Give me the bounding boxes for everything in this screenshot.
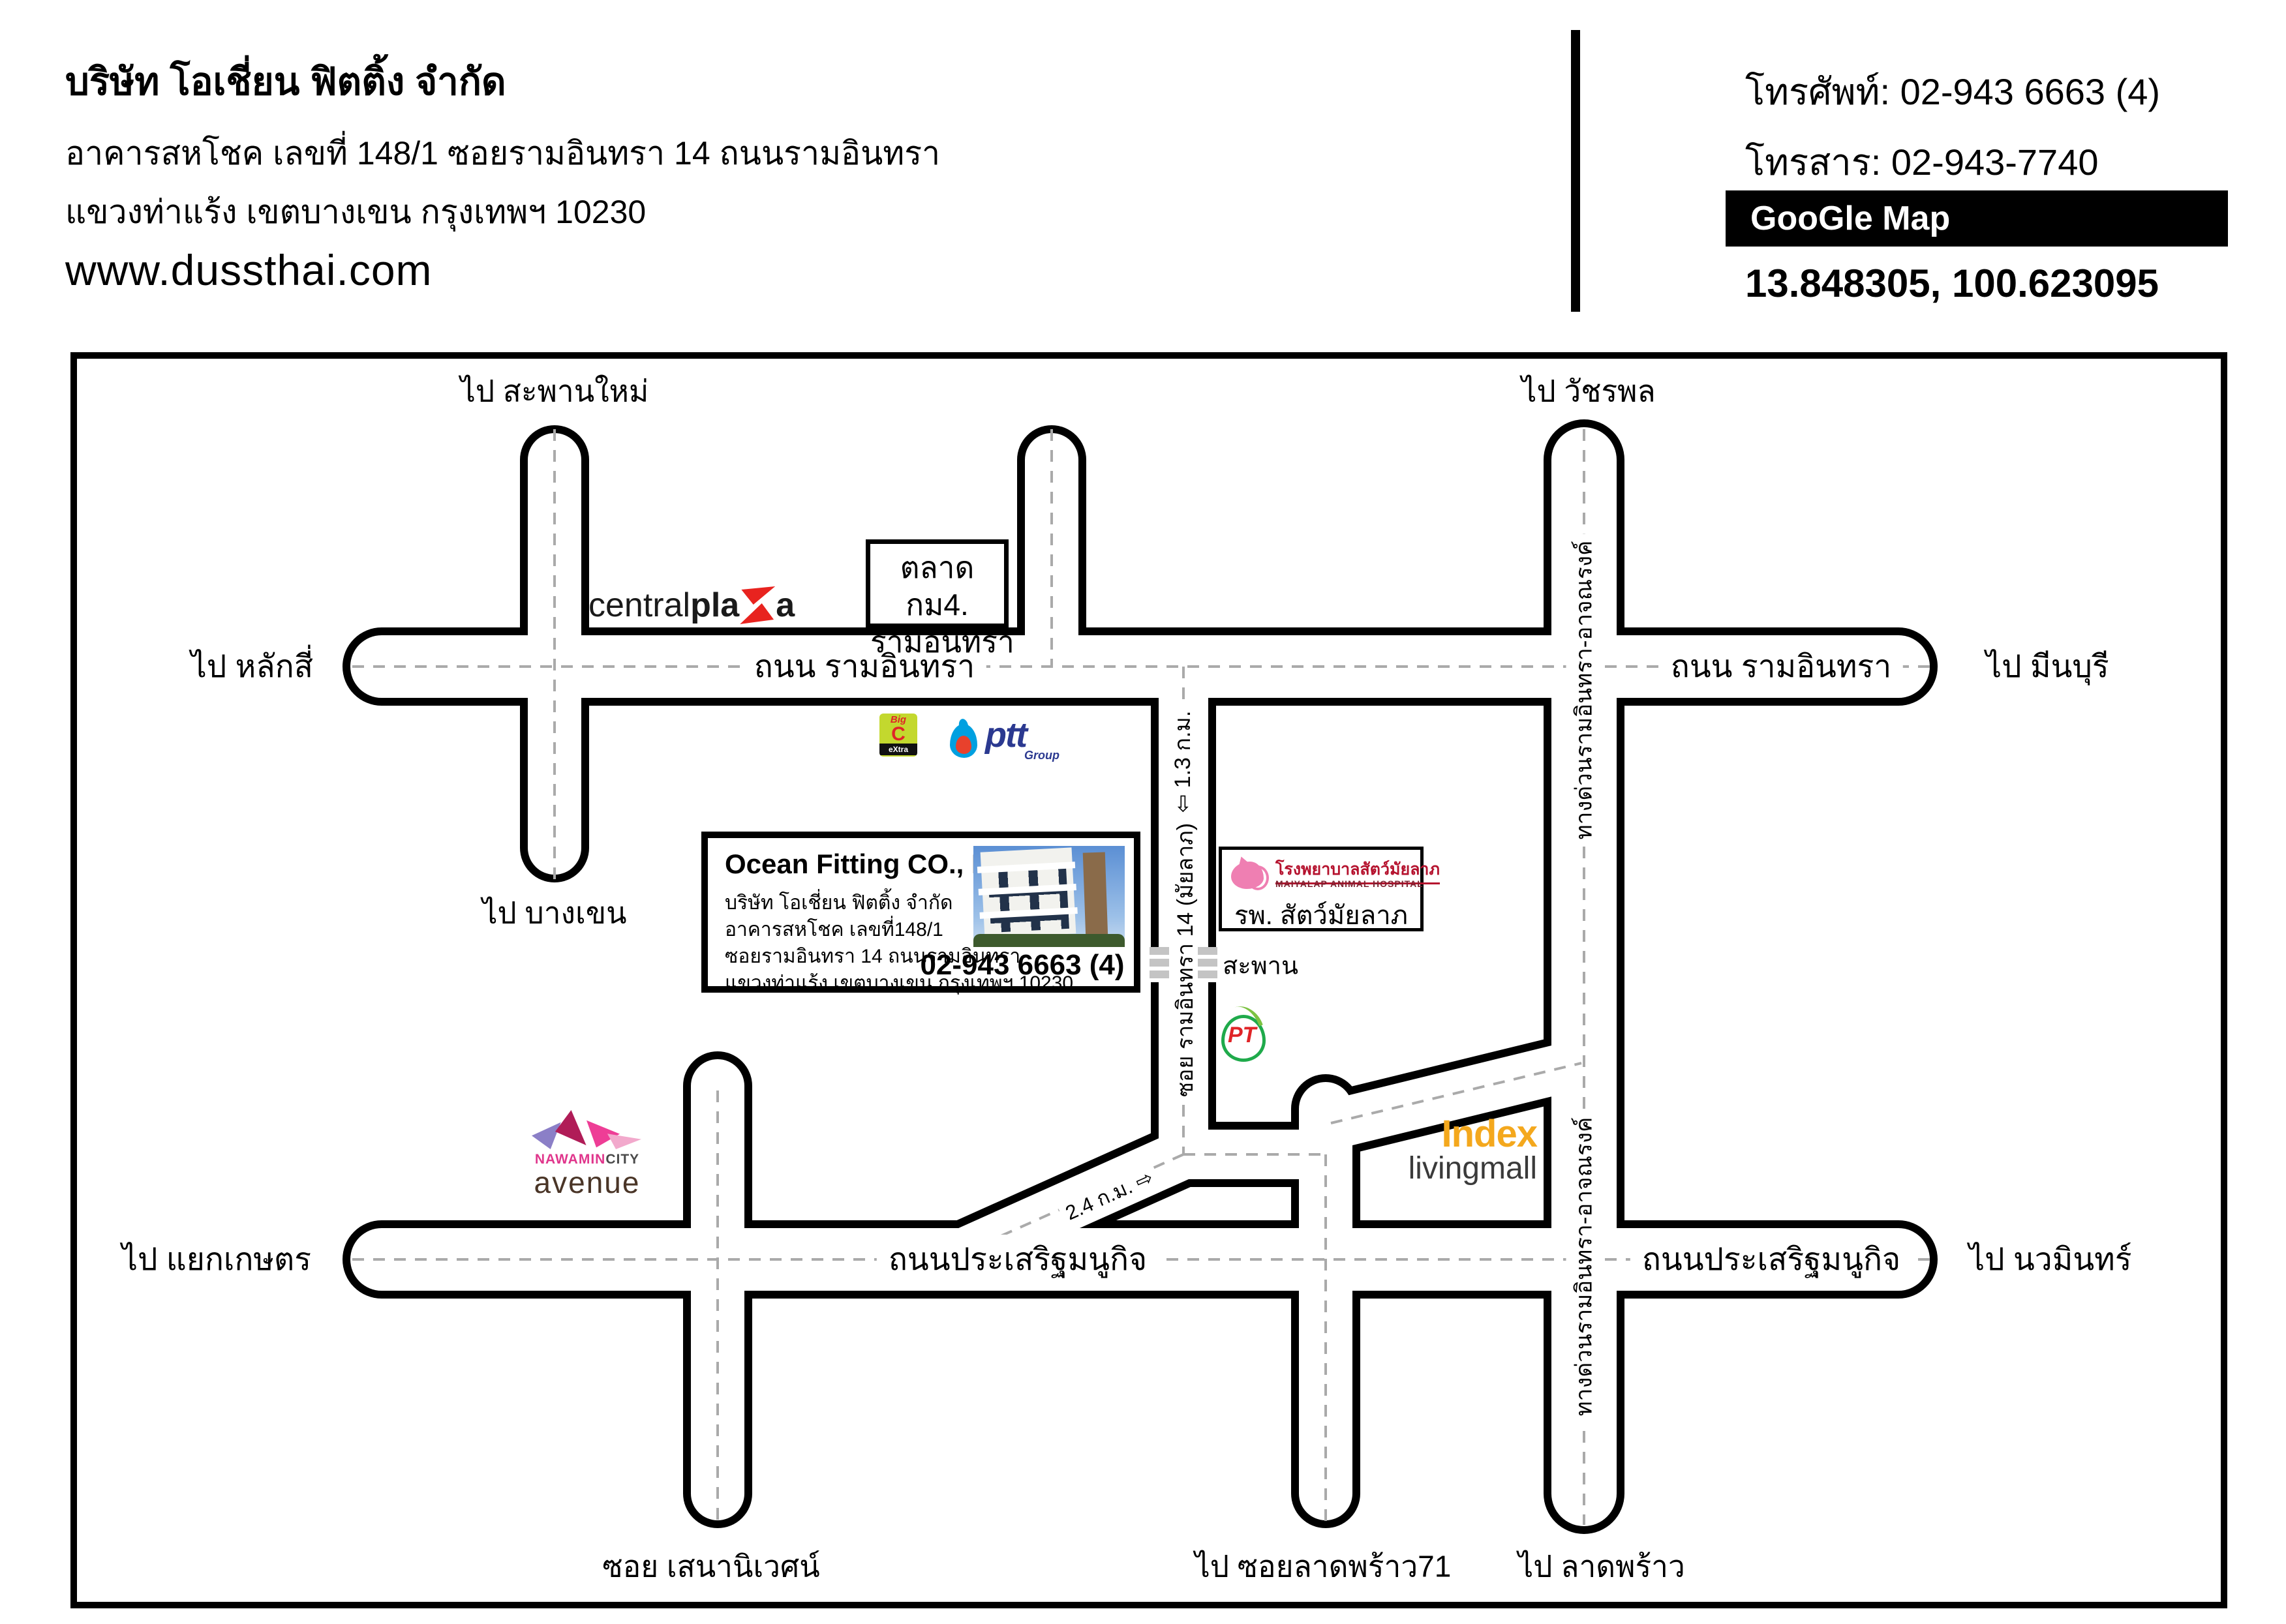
dest-soi-ladprao71: ไป ซอยลาดพร้าว71: [1195, 1543, 1452, 1591]
market-km4-line1: ตลาด กม4.: [870, 549, 1004, 624]
dest-lak-si: ไป หลักสี่: [179, 642, 325, 691]
central-plaza-z-icon: [740, 586, 775, 624]
road-network: [0, 0, 2286, 1624]
big-c-c-text: C: [879, 725, 917, 744]
distance-1-3-text: 1.3 ก.ม.: [1170, 711, 1195, 789]
index-sub: livingmall: [1409, 1153, 1537, 1184]
market-km4-box: ตลาด กม4. รามอินทรา: [866, 539, 1009, 628]
ocean-fitting-line2: อาคารสหโชค เลขที่148/1: [725, 914, 943, 945]
market-km4-line2: รามอินทรา: [870, 624, 1004, 661]
bridge-hatch-icon: [1198, 947, 1217, 982]
nawamin-name: NAWAMIN: [535, 1152, 606, 1167]
central-plaza-logo: centralplaa: [588, 586, 795, 625]
index-livingmall-logo: Index livingmall: [1409, 1115, 1537, 1184]
index-name: Index: [1409, 1115, 1537, 1153]
maiyalap-english-name: MAIYALAP ANIMAL HOSPITAL: [1275, 879, 1424, 889]
distance-1-3-km: ⇦ 1.3 ก.ม.: [1165, 704, 1200, 820]
maiyalap-hospital-box: โรงพยาบาลสัตว์มัยลาภ MAIYALAP ANIMAL HOS…: [1219, 847, 1424, 931]
maiyalap-logo-icon: [1231, 856, 1269, 893]
pt-station-logo: PT: [1221, 1006, 1264, 1059]
dest-ladprao: ไป ลาดพร้าว: [1518, 1543, 1685, 1591]
dest-nawamin: ไป นวมินทร์: [1957, 1235, 2144, 1284]
bridge-hatch-icon: [1150, 947, 1169, 982]
ocean-fitting-line1: บริษัท โอเชี่ยน ฟิตติ้ง จำกัด: [725, 888, 952, 918]
dest-min-buri: ไป มีนบุรี: [1974, 642, 2121, 691]
nawamin-city-avenue-logo: NAWAMINCITY avenue: [532, 1109, 643, 1197]
nawamin-star-icon: [532, 1109, 643, 1150]
building-photo: [973, 846, 1125, 947]
ocean-fitting-box: Ocean Fitting CO., LTD. บริษัท โอเชี่ยน …: [701, 832, 1140, 993]
central-plaza-text-3: a: [776, 586, 795, 624]
ptt-logo: ptt Group: [947, 717, 1091, 764]
bridge-label: สะพาน: [1223, 946, 1298, 985]
soi-ram-inthra-14-label: ซอย รามอินทรา 14 (มัยลาภ): [1167, 817, 1202, 1104]
big-c-extra-logo: Big C eXtra: [879, 714, 917, 757]
dest-bang-khen: ไป บางเขน: [482, 890, 626, 937]
arrow-up-right-icon: ⇨: [1132, 1165, 1157, 1194]
ptt-flame-icon: [947, 719, 980, 759]
dest-yaek-kaset: ไป แยกเกษตร: [110, 1235, 323, 1284]
dest-saphan-mai: ไป สะพานใหม่: [461, 368, 649, 415]
pt-name: PT: [1228, 1023, 1256, 1048]
nawamin-city-text: CITY: [605, 1152, 639, 1167]
ptt-group: Group: [1024, 749, 1059, 762]
arrow-down-icon: ⇦: [1170, 794, 1195, 813]
expressway-label-1: ทางด่วนรามอินทรา-อาจณรงค์: [1566, 534, 1602, 847]
ptt-name: ptt: [985, 715, 1026, 755]
big-c-extra-text: eXtra: [879, 744, 917, 755]
central-plaza-text-1: central: [588, 586, 690, 624]
expressway-label-2: ทางด่วนรามอินทรา-อาจณรงค์: [1566, 1111, 1602, 1423]
road-prasert-label-1: ถนนประเสริฐมนูกิจ: [877, 1235, 1159, 1284]
road-ram-inthra-label-2: ถนน รามอินทรา: [1659, 642, 1903, 691]
ocean-fitting-phone: 02-943 6663 (4): [915, 949, 1130, 982]
nawamin-avenue-text: avenue: [532, 1167, 643, 1197]
map-sheet: { "header": { "company": "บริษัท โอเชี่ย…: [0, 0, 2286, 1624]
central-plaza-text-2: pla: [690, 586, 739, 624]
maiyalap-short-name: รพ. สัตว์มัยลาภ: [1222, 894, 1420, 936]
road-prasert-label-2: ถนนประเสริฐมนูกิจ: [1630, 1235, 1912, 1284]
soi-sena-nivet-label: ซอย เสนานิเวศน์: [602, 1543, 819, 1591]
dest-watcharapol: ไป วัชรพล: [1521, 368, 1655, 415]
